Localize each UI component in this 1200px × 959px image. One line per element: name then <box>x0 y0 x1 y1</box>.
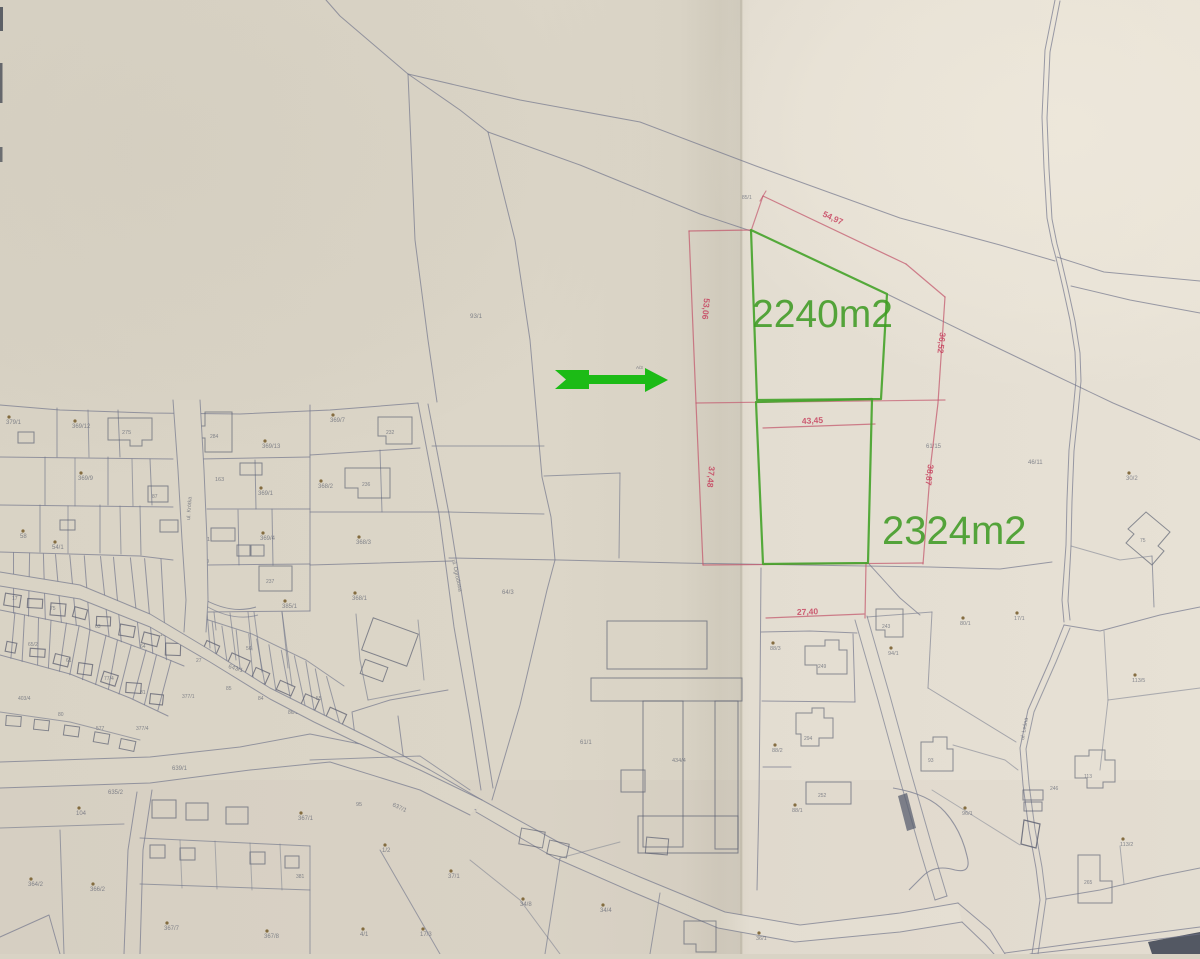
svg-text:369/13: 369/13 <box>262 444 281 450</box>
svg-text:635/2: 635/2 <box>108 790 124 796</box>
svg-text:163: 163 <box>215 477 224 483</box>
svg-text:94/1: 94/1 <box>888 651 899 657</box>
svg-text:434/4: 434/4 <box>672 758 686 764</box>
svg-text:85: 85 <box>226 686 232 692</box>
svg-text:385/1: 385/1 <box>282 604 298 610</box>
svg-text:43,45: 43,45 <box>802 415 824 426</box>
svg-text:113/2: 113/2 <box>1120 842 1133 848</box>
svg-text:37/1: 37/1 <box>448 874 460 880</box>
svg-text:1/2: 1/2 <box>382 848 391 854</box>
svg-text:17: 17 <box>12 596 18 602</box>
svg-text:85/1: 85/1 <box>742 195 752 201</box>
svg-text:377/1: 377/1 <box>182 694 195 700</box>
svg-text:639/1: 639/1 <box>172 766 188 772</box>
svg-text:377/4: 377/4 <box>136 726 149 732</box>
svg-text:61/15: 61/15 <box>926 444 942 450</box>
svg-text:369/9: 369/9 <box>78 476 94 482</box>
svg-text:232: 232 <box>386 430 395 436</box>
svg-text:368/3: 368/3 <box>356 540 372 546</box>
svg-text:88/3: 88/3 <box>770 646 781 652</box>
svg-text:65/2: 65/2 <box>28 642 38 648</box>
svg-text:17/1: 17/1 <box>1014 616 1025 622</box>
svg-text:36/1: 36/1 <box>756 936 767 942</box>
svg-text:366/2: 366/2 <box>90 887 106 893</box>
svg-text:54/1: 54/1 <box>52 545 64 551</box>
svg-text:53,06: 53,06 <box>700 298 712 320</box>
svg-text:55: 55 <box>316 696 322 702</box>
svg-text:30/2: 30/2 <box>1126 476 1138 482</box>
svg-text:367/1: 367/1 <box>298 816 314 822</box>
svg-text:27,40: 27,40 <box>797 606 819 617</box>
svg-text:87: 87 <box>152 494 158 500</box>
svg-text:243: 243 <box>882 624 891 630</box>
svg-text:A/3: A/3 <box>636 365 643 370</box>
svg-text:64/3: 64/3 <box>502 590 514 596</box>
svg-text:367/7: 367/7 <box>164 926 180 932</box>
svg-text:63: 63 <box>95 624 101 630</box>
svg-text:34/4: 34/4 <box>600 908 612 914</box>
svg-text:84: 84 <box>258 696 264 702</box>
svg-text:369/1: 369/1 <box>258 491 274 497</box>
svg-text:88/2: 88/2 <box>772 748 783 754</box>
svg-text:81: 81 <box>140 690 146 696</box>
svg-text:368/2: 368/2 <box>318 484 334 490</box>
svg-text:284: 284 <box>210 434 219 440</box>
svg-text:249: 249 <box>818 664 827 670</box>
svg-text:104: 104 <box>76 811 87 817</box>
svg-text:113/5: 113/5 <box>1132 678 1145 684</box>
svg-text:80: 80 <box>58 712 64 718</box>
svg-text:294: 294 <box>804 736 813 742</box>
svg-text:56: 56 <box>246 646 252 652</box>
svg-text:61: 61 <box>66 658 72 664</box>
svg-text:265: 265 <box>1084 880 1093 886</box>
svg-text:61/1: 61/1 <box>580 740 592 746</box>
svg-text:58: 58 <box>20 534 27 540</box>
svg-text:369/7: 369/7 <box>330 418 346 424</box>
svg-text:95: 95 <box>356 802 362 808</box>
svg-text:252: 252 <box>818 793 827 799</box>
svg-text:4/1: 4/1 <box>360 932 369 938</box>
svg-text:236: 236 <box>362 482 371 488</box>
svg-text:2324m2: 2324m2 <box>882 509 1027 553</box>
svg-text:403/4: 403/4 <box>18 696 31 702</box>
svg-text:80/1: 80/1 <box>960 621 971 627</box>
svg-text:367/8: 367/8 <box>264 934 280 940</box>
svg-text:77/4: 77/4 <box>104 676 114 682</box>
svg-text:93/1: 93/1 <box>470 313 483 320</box>
svg-text:37,48: 37,48 <box>705 466 717 488</box>
svg-text:369/12: 369/12 <box>72 424 91 430</box>
svg-text:275: 275 <box>122 430 131 436</box>
svg-text:88/1: 88/1 <box>792 808 803 814</box>
svg-text:381: 381 <box>296 874 305 880</box>
svg-text:93: 93 <box>928 758 934 764</box>
svg-text:237: 237 <box>266 579 275 585</box>
svg-text:46/11: 46/11 <box>1028 460 1043 466</box>
svg-text:364/2: 364/2 <box>28 882 44 888</box>
svg-text:75: 75 <box>1140 538 1146 544</box>
svg-text:64: 64 <box>140 644 146 650</box>
svg-text:246: 246 <box>1050 786 1059 792</box>
svg-text:2240m2: 2240m2 <box>752 293 893 336</box>
svg-text:75: 75 <box>50 606 56 612</box>
svg-text:379/1: 379/1 <box>6 420 22 426</box>
svg-text:27: 27 <box>196 658 202 664</box>
svg-text:369/4: 369/4 <box>260 536 276 542</box>
svg-text:368/1: 368/1 <box>352 596 368 602</box>
svg-text:113: 113 <box>1084 774 1092 780</box>
